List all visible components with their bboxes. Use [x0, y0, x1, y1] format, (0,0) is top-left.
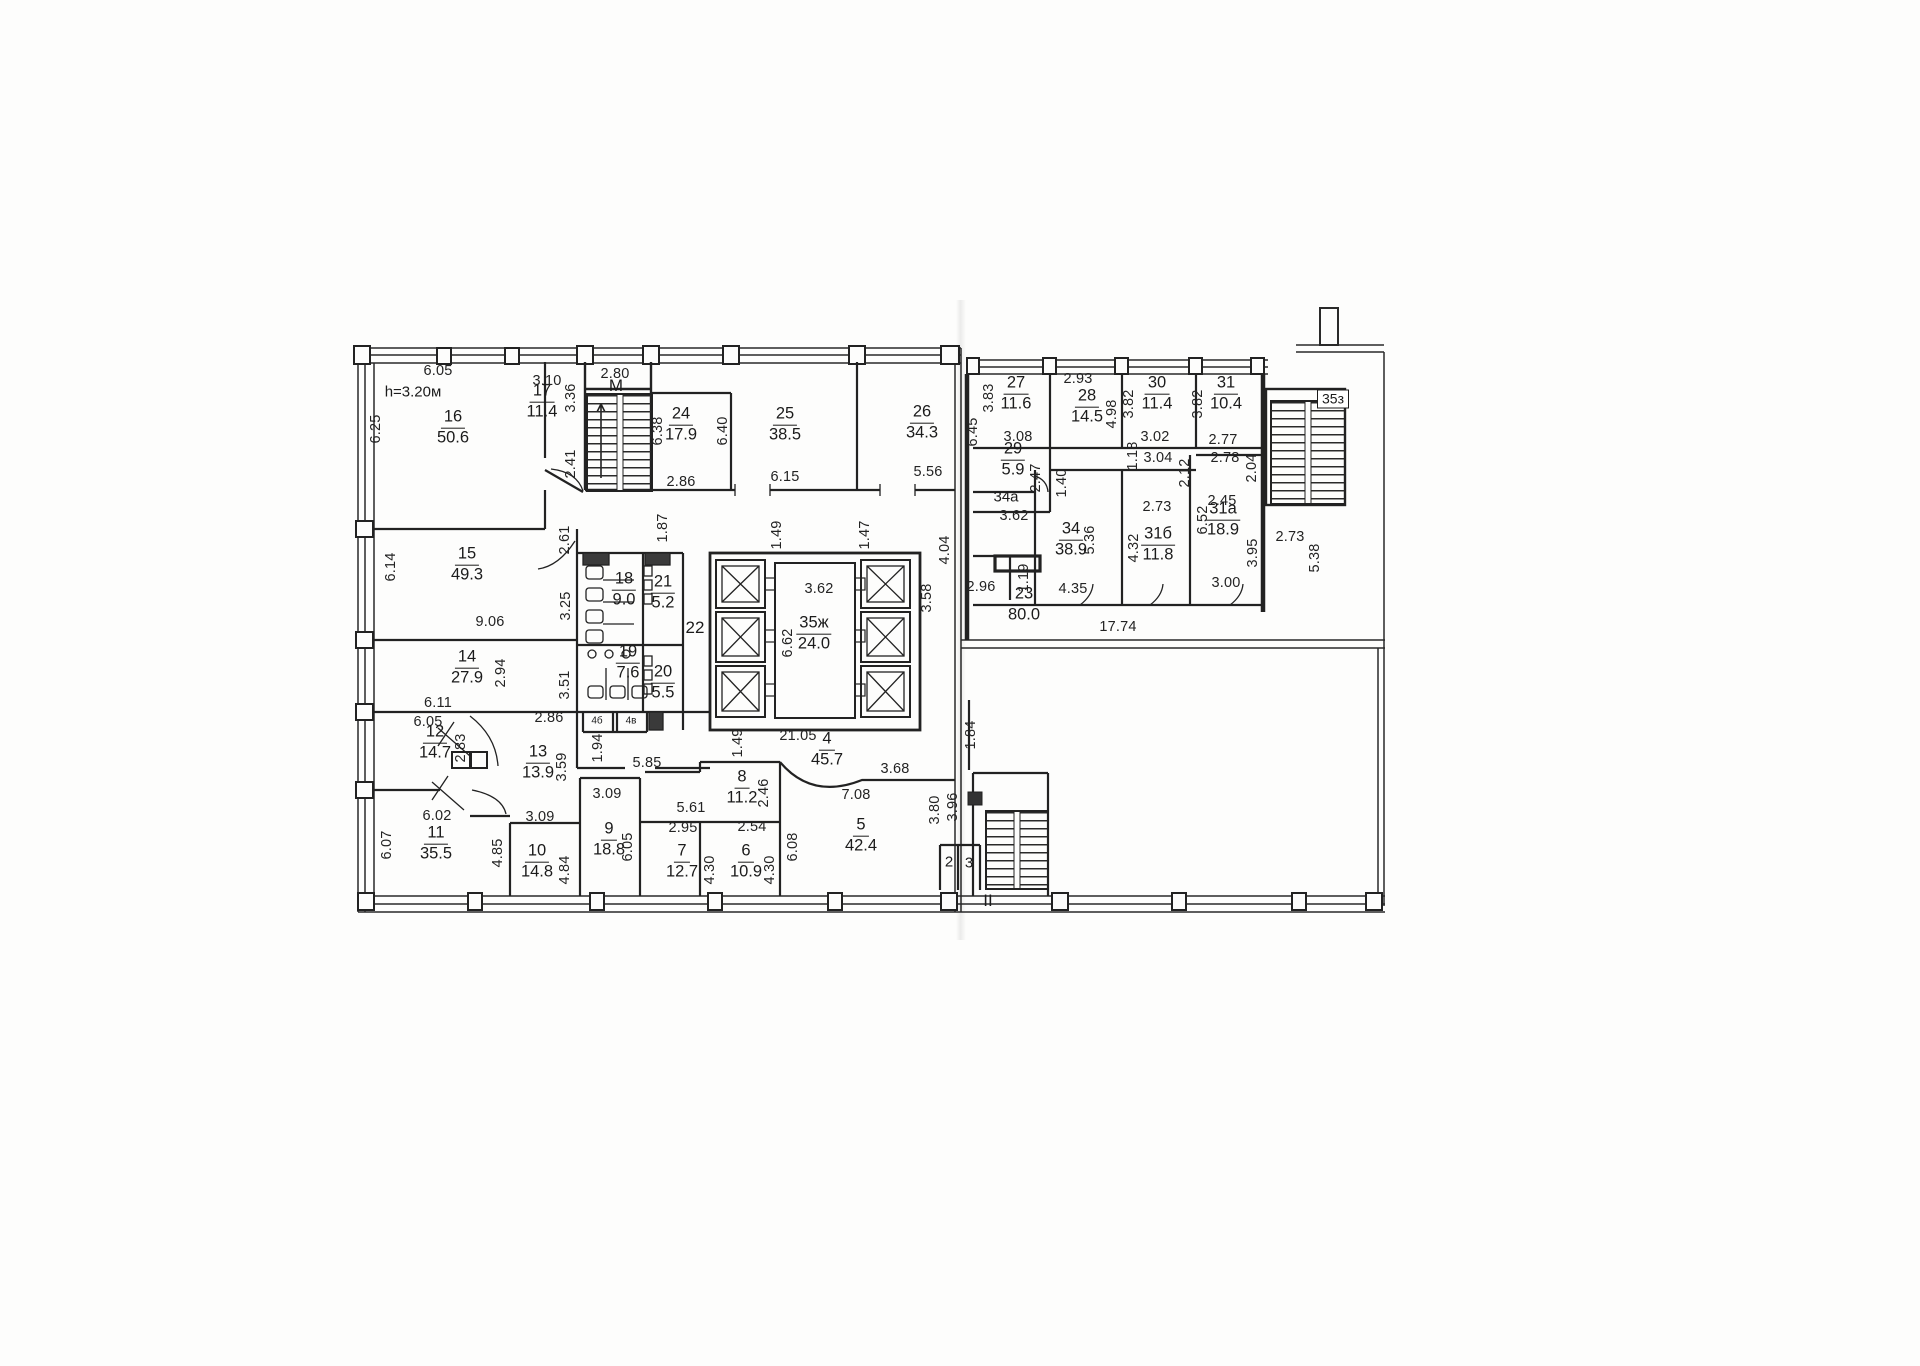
room-area: 80.0	[1008, 606, 1040, 625]
dimension-label: 3.10	[532, 373, 561, 389]
room-label-28: 2814.5	[1071, 388, 1103, 427]
dimension-label: 3.09	[592, 786, 621, 802]
room-number: 26	[910, 404, 934, 424]
room-number: 7	[674, 843, 689, 863]
room-area: 13.9	[522, 764, 554, 783]
room-number: 24	[669, 406, 693, 426]
room-area: 11.2	[727, 789, 758, 808]
dimension-label: 3.80	[927, 795, 943, 824]
room-label-27: 2711.6	[1001, 375, 1032, 414]
dimension-label: 2.94	[493, 658, 509, 687]
room-area: 34.3	[906, 424, 938, 443]
room-label-5: 542.4	[845, 817, 877, 856]
dimension-label: 3.62	[804, 581, 833, 597]
dimension-label: 6.11	[424, 695, 452, 711]
room-number: 34	[1059, 521, 1083, 541]
room-area: 14.8	[521, 863, 553, 882]
dimension-label: 1.49	[769, 520, 785, 549]
dimension-label: 6.40	[715, 416, 731, 445]
dimension-label: 6.02	[422, 808, 451, 824]
dimension-label: 4.84	[557, 855, 573, 884]
dimension-label: 6.45	[965, 417, 981, 446]
room-area: 35.5	[420, 845, 452, 864]
dimension-label: 3.00	[1211, 575, 1240, 591]
room-label-7: 712.7	[666, 843, 698, 882]
annotation-label: 2	[945, 854, 953, 871]
room-number: 31	[1214, 375, 1238, 395]
room-area: 12.7	[666, 863, 698, 882]
dimension-label: 3.25	[558, 591, 574, 620]
room-area: 11.8	[1141, 546, 1175, 565]
dimension-label: 3.58	[919, 583, 935, 612]
room-area: 5.2	[651, 594, 675, 613]
room-area: 5.9	[1001, 461, 1025, 480]
dimension-label: 4.30	[702, 855, 718, 884]
dimension-label: 2.61	[557, 525, 573, 554]
dimension-label: 2.41	[563, 449, 579, 478]
dimension-label: 3.96	[945, 792, 961, 821]
room-area: 11.4	[1142, 395, 1173, 414]
dimension-label: 6.62	[780, 628, 796, 657]
dimension-label: 6.07	[379, 830, 395, 859]
dimension-label: 4.30	[762, 855, 778, 884]
room-label-16: 1650.6	[437, 409, 469, 448]
dimension-label: 3.51	[557, 670, 573, 699]
dimension-label: 4.35	[1058, 581, 1087, 597]
room-number: 35ж	[796, 615, 831, 635]
room-number: 19	[616, 644, 640, 664]
dimension-label: 2.45	[1207, 493, 1236, 509]
room-label-20: 205.5	[651, 664, 675, 703]
dimension-label: 2.78	[1210, 450, 1239, 466]
room-number: 25	[773, 406, 797, 426]
room-number: 16	[441, 409, 465, 429]
room-area: 14.7	[419, 744, 451, 763]
room-area: 27.9	[451, 669, 483, 688]
room-number: 6	[738, 843, 753, 863]
room-area: 45.7	[811, 751, 843, 770]
floor-plan-scan: 1650.61711.42417.92538.52634.32711.62814…	[0, 0, 1920, 1366]
dimension-label: 6.05	[620, 832, 636, 861]
dimension-label: 1.47	[857, 520, 873, 549]
room-label-14: 1427.9	[451, 649, 483, 688]
dimension-label: 4.04	[937, 535, 953, 564]
annotation-label: 3	[965, 855, 973, 872]
dimension-label: 17.74	[1099, 619, 1136, 635]
dimension-label: 2.54	[737, 819, 766, 835]
annotation-label: 35з	[1317, 390, 1349, 409]
dimension-label: 5.36	[1082, 525, 1098, 554]
dimension-label: 3.04	[1143, 450, 1172, 466]
dimension-label: 2.04	[1244, 453, 1260, 482]
dimension-label: 1.19	[1016, 563, 1032, 592]
dimension-label: 2.95	[668, 820, 697, 836]
dimension-label: 2.83	[453, 733, 469, 762]
room-label-10: 1014.8	[521, 843, 553, 882]
room-label-31б: 31б11.8	[1141, 526, 1175, 565]
room-number: 31б	[1141, 526, 1175, 546]
room-label-24: 2417.9	[665, 406, 697, 445]
room-area: 24.0	[796, 635, 831, 654]
room-label-25: 2538.5	[769, 406, 801, 445]
room-area: 18.9	[1206, 521, 1240, 540]
room-number: 20	[651, 664, 675, 684]
dimension-label: 5.38	[1307, 543, 1323, 572]
dimension-label: 6.05	[413, 714, 442, 730]
room-area: 11.6	[1001, 395, 1032, 414]
dimension-label: 2.86	[534, 710, 563, 726]
dimension-label: 2.96	[966, 579, 995, 595]
dimension-label: 3.09	[525, 809, 554, 825]
dimension-label: 5.56	[913, 464, 942, 480]
room-number: 18	[612, 571, 636, 591]
room-number: 8	[734, 769, 749, 789]
room-number: 10	[525, 843, 549, 863]
room-area: 17.9	[665, 426, 697, 445]
dimension-label: 2.77	[1208, 432, 1237, 448]
dimension-label: 21.05	[779, 728, 816, 744]
room-area: 9.0	[612, 591, 636, 610]
annotation-label: h=3.20м	[385, 384, 442, 401]
room-label-15: 1549.3	[451, 546, 483, 585]
room-label-29: 295.9	[1001, 441, 1025, 480]
room-label-13: 1313.9	[522, 744, 554, 783]
annotation-label: II	[983, 891, 992, 911]
room-label-30: 3011.4	[1142, 375, 1173, 414]
dimension-label: 2.47	[1028, 463, 1044, 492]
dimension-label: 6.52	[1195, 505, 1211, 534]
room-number: 27	[1004, 375, 1028, 395]
dimension-label: 7.08	[841, 787, 870, 803]
dimension-label: 2.73	[1142, 499, 1171, 515]
room-area: 14.5	[1071, 408, 1103, 427]
room-number: 30	[1145, 375, 1169, 395]
dimension-label: 3.82	[1190, 389, 1206, 418]
room-label-26: 2634.3	[906, 404, 938, 443]
dimension-label: 6.08	[785, 832, 801, 861]
room-area: 50.6	[437, 429, 469, 448]
dimension-label: 1.94	[590, 733, 606, 762]
annotation-label: 34а	[993, 489, 1018, 506]
room-number: 15	[455, 546, 479, 566]
room-area: 38.5	[769, 426, 801, 445]
room-area: 11.4	[527, 403, 558, 422]
room-area: 10.9	[730, 863, 762, 882]
room-number: 28	[1075, 388, 1099, 408]
room-label-6: 610.9	[730, 843, 762, 882]
room-number: 4	[819, 731, 834, 751]
dimension-label: 4.98	[1104, 399, 1120, 428]
dimension-label: 1.87	[655, 513, 671, 542]
dimension-label: 3.83	[981, 383, 997, 412]
room-area: 7.6	[616, 664, 640, 683]
dimension-label: 2.73	[1275, 529, 1304, 545]
dimension-label: 5.61	[676, 800, 705, 816]
room-area: 49.3	[451, 566, 483, 585]
dimension-label: 1.84	[963, 720, 979, 749]
room-label-11: 1135.5	[420, 825, 452, 864]
dimension-label: 2.12	[1177, 458, 1193, 487]
dimension-label: 3.68	[880, 761, 909, 777]
room-area: 42.4	[845, 837, 877, 856]
dimension-label: 6.05	[423, 363, 452, 379]
dimension-label: 6.14	[383, 552, 399, 581]
dimension-label: 3.95	[1245, 538, 1261, 567]
room-number: 14	[455, 649, 479, 669]
dimension-label: 4.32	[1126, 533, 1142, 562]
room-area: 10.4	[1210, 395, 1242, 414]
dimension-label: 3.08	[1003, 429, 1032, 445]
dimension-label: 1.49	[730, 728, 746, 757]
dimension-label: 2.93	[1063, 371, 1092, 387]
room-label-8: 811.2	[727, 769, 758, 808]
dimension-label: 1.40	[1054, 468, 1070, 497]
room-label-35ж: 35ж24.0	[796, 615, 831, 654]
room-label-19: 197.6	[616, 644, 640, 683]
dimension-label: 3.59	[554, 752, 570, 781]
room-number: 13	[526, 744, 550, 764]
annotation-label: М	[609, 376, 623, 396]
dimension-label: 3.62	[999, 508, 1028, 524]
dimension-label: 6.15	[770, 469, 799, 485]
room-area: 5.5	[651, 684, 675, 703]
dimension-label: 5.85	[632, 755, 661, 771]
dimension-label: 4.85	[490, 838, 506, 867]
dimension-label: 1.18	[1125, 441, 1141, 470]
room-number: 9	[601, 821, 616, 841]
annotation-label: 22	[686, 618, 705, 638]
dimension-label: 6.25	[368, 414, 384, 443]
dimension-label: 6.38	[650, 416, 666, 445]
room-number: 21	[651, 574, 675, 594]
dimension-label: 3.36	[563, 383, 579, 412]
annotation-label: 4в	[626, 716, 637, 727]
dimension-label: 2.86	[666, 474, 695, 490]
dimension-label: 2.46	[756, 778, 772, 807]
dimension-label: 9.06	[475, 614, 504, 630]
annotation-label: 4б	[591, 716, 602, 727]
room-label-21: 215.2	[651, 574, 675, 613]
labels-layer: 1650.61711.42417.92538.52634.32711.62814…	[0, 0, 1920, 1366]
room-label-31: 3110.4	[1210, 375, 1242, 414]
room-label-18: 189.0	[612, 571, 636, 610]
dimension-label: 3.82	[1121, 389, 1137, 418]
room-number: 11	[424, 825, 447, 845]
room-number: 5	[853, 817, 868, 837]
dimension-label: 3.02	[1140, 429, 1169, 445]
